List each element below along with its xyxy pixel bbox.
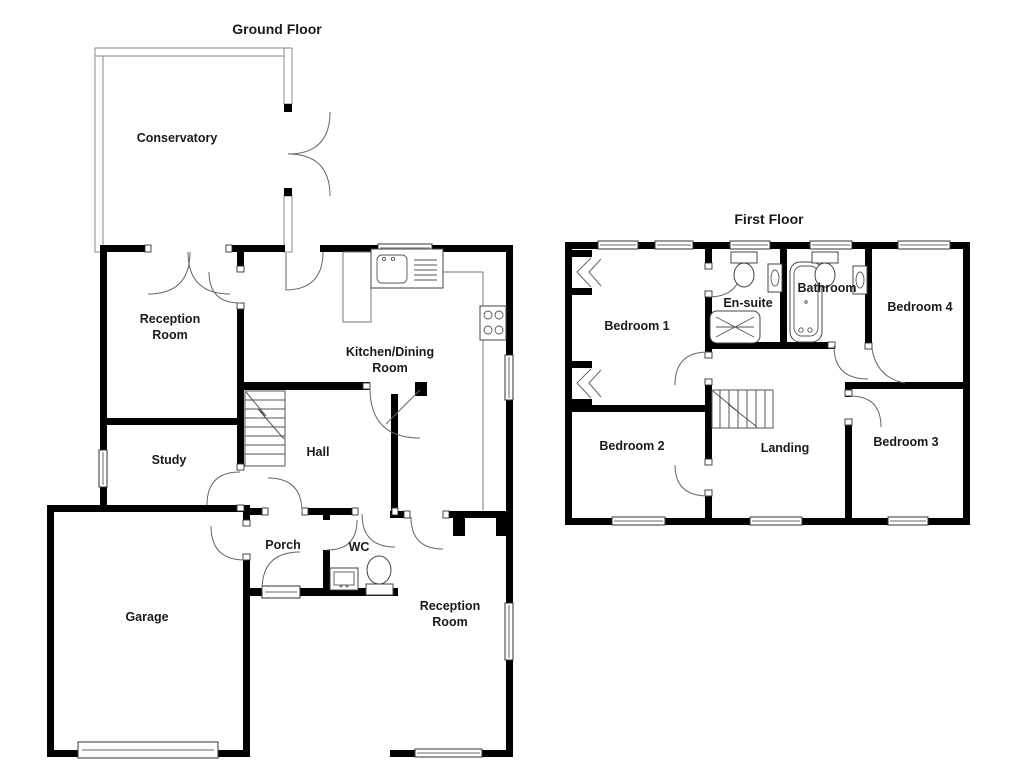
kitchen-counter	[343, 252, 371, 322]
conservatory-glass-walls	[95, 48, 292, 252]
garage-access-door-arc	[211, 526, 245, 560]
room-label-reception-top: Reception	[140, 312, 200, 326]
room-label-kitchen: Kitchen/Dining	[346, 345, 434, 359]
closet-stub	[572, 250, 592, 257]
room-label-conservatory: Conservatory	[137, 131, 218, 145]
bathroom-toilet-tank	[812, 252, 838, 263]
room-label-wc: WC	[349, 540, 370, 554]
room-label-bedroom2: Bedroom 2	[599, 439, 664, 453]
chimney-stub	[453, 511, 465, 536]
bedroom1-door-arc	[675, 352, 708, 385]
kitchen-fixtures	[343, 249, 506, 510]
closet-stub	[572, 399, 592, 406]
conservatory-door-arc	[288, 154, 330, 196]
room-label-reception-top-2: Room	[152, 328, 187, 342]
study-door-arc	[207, 472, 240, 505]
ground-floor-plan: Ground Floor	[47, 21, 513, 758]
room-label-hall: Hall	[307, 445, 330, 459]
bathroom-door-arc	[834, 346, 868, 379]
reception-side-door-arc	[209, 272, 240, 303]
porch-entrance-door-arc	[262, 552, 300, 590]
room-label-ensuite: En-suite	[723, 296, 772, 310]
reception-french-door-arc	[148, 252, 190, 294]
room-label-bedroom1: Bedroom 1	[604, 319, 669, 333]
conservatory-door-arc	[288, 112, 330, 154]
wc-toilet-icon	[367, 556, 391, 584]
room-label-study: Study	[152, 453, 187, 467]
room-label-reception-bottom-2: Room	[432, 615, 467, 629]
ensuite-sink-icon	[768, 264, 782, 292]
room-label-bathroom: Bathroom	[797, 281, 856, 295]
reception-bottom-door-arc	[411, 517, 443, 549]
room-label-reception-bottom: Reception	[420, 599, 480, 613]
stairs-first	[712, 390, 773, 428]
room-label-bedroom3: Bedroom 3	[873, 435, 938, 449]
ground-floor-walls	[47, 245, 513, 757]
kitchen-door-arc	[285, 252, 323, 290]
hob-icon	[480, 306, 506, 340]
first-floor-plan: First Floor	[565, 211, 970, 525]
closet-stub	[572, 361, 592, 368]
room-label-bedroom4: Bedroom 4	[887, 300, 952, 314]
stairs-ground	[245, 391, 285, 466]
ensuite-toilet-icon	[734, 263, 754, 287]
front-door-arc	[268, 478, 302, 512]
bedroom2-door-arc	[675, 465, 708, 496]
floor-title-first: First Floor	[734, 211, 804, 227]
chimney-stub	[496, 511, 509, 536]
room-label-kitchen-2: Room	[372, 361, 407, 375]
ensuite-toilet-tank	[731, 252, 757, 263]
bedroom3-door-arc	[850, 396, 881, 427]
closet-stub	[572, 288, 592, 295]
closet-bifold-doors	[577, 258, 601, 398]
bedroom4-door-arc	[872, 349, 905, 383]
floor-title-ground: Ground Floor	[232, 21, 322, 37]
floorplan-svg: Ground Floor	[0, 0, 1024, 768]
room-label-porch: Porch	[265, 538, 300, 552]
bathroom-fixtures	[790, 252, 867, 342]
room-label-landing: Landing	[761, 441, 810, 455]
floorplan-page: Ground Floor	[0, 0, 1024, 768]
room-label-garage: Garage	[125, 610, 168, 624]
kitchen-counter	[443, 252, 483, 510]
